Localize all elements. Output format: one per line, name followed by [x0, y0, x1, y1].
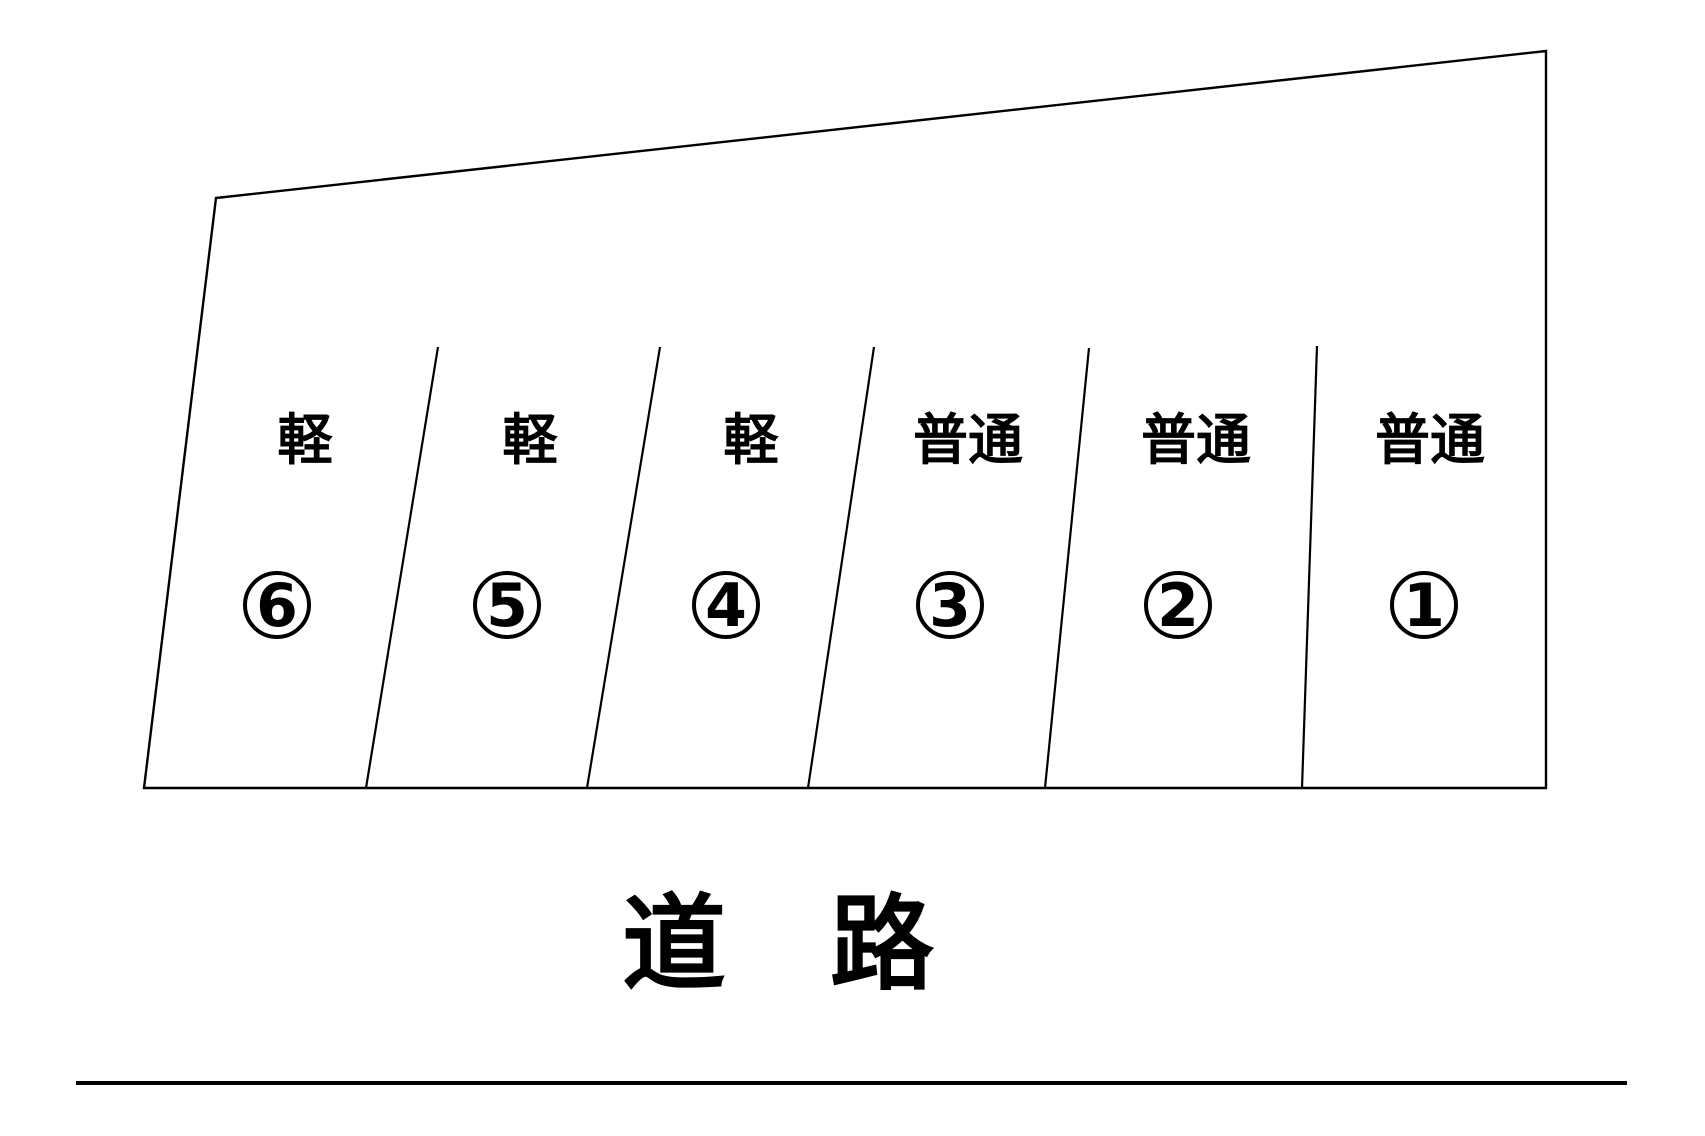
parking-space-2: 普通 2: [1141, 408, 1251, 641]
road-label: 道 路: [622, 883, 935, 1005]
space-6-number: 6: [256, 571, 298, 641]
space-divider-5-4: [587, 347, 660, 788]
parking-space-4: 軽 4: [694, 408, 779, 641]
space-1-type-label: 普通: [1375, 408, 1485, 472]
parking-space-5: 軽 5: [475, 408, 558, 641]
space-2-number: 2: [1157, 571, 1199, 641]
space-4-type-label: 軽: [723, 408, 779, 472]
space-4-number: 4: [705, 571, 747, 641]
space-3-type-label: 普通: [913, 408, 1023, 472]
parking-space-1: 普通 1: [1375, 408, 1485, 641]
space-6-type-label: 軽: [277, 408, 333, 472]
parking-space-6: 軽 6: [245, 408, 333, 641]
space-divider-6-5: [366, 347, 438, 788]
parking-space-3: 普通 3: [913, 408, 1023, 641]
space-3-number: 3: [929, 571, 971, 641]
space-divider-4-3: [808, 347, 874, 788]
lot-outline: [144, 51, 1546, 788]
space-divider-2-1: [1302, 346, 1317, 788]
space-2-type-label: 普通: [1141, 408, 1251, 472]
space-5-number: 5: [486, 571, 528, 641]
space-5-type-label: 軽: [502, 408, 558, 472]
parking-lot-diagram: 軽 6 軽 5 軽 4 普通 3 普通 2 普通: [0, 0, 1705, 1136]
diagram-canvas: 軽 6 軽 5 軽 4 普通 3 普通 2 普通: [0, 0, 1705, 1136]
space-divider-3-2: [1045, 348, 1089, 788]
space-1-number: 1: [1403, 571, 1445, 641]
